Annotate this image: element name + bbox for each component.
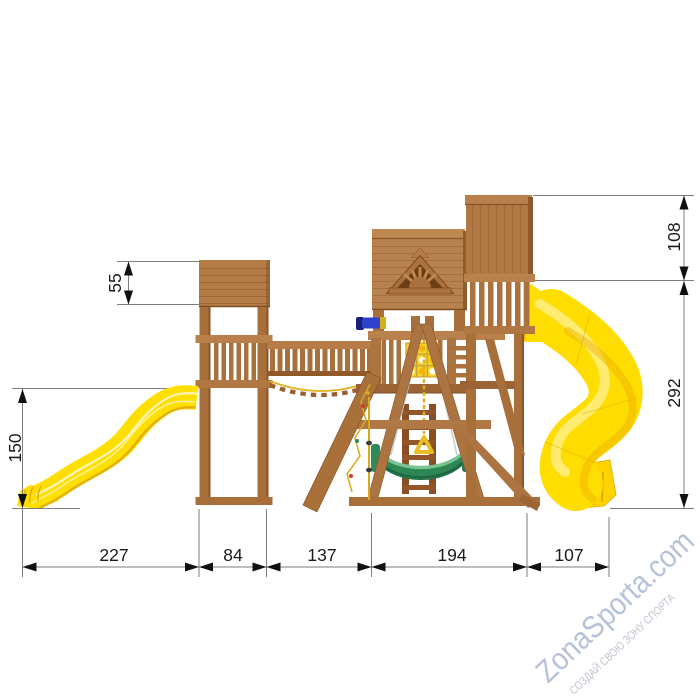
svg-text:84: 84 xyxy=(223,545,243,565)
svg-text:194: 194 xyxy=(437,545,466,565)
svg-text:292: 292 xyxy=(664,378,684,407)
svg-text:227: 227 xyxy=(99,545,128,565)
svg-text:150: 150 xyxy=(5,433,25,462)
svg-text:108: 108 xyxy=(664,222,684,251)
svg-text:137: 137 xyxy=(307,545,336,565)
svg-text:55: 55 xyxy=(105,273,125,292)
svg-text:107: 107 xyxy=(554,545,583,565)
